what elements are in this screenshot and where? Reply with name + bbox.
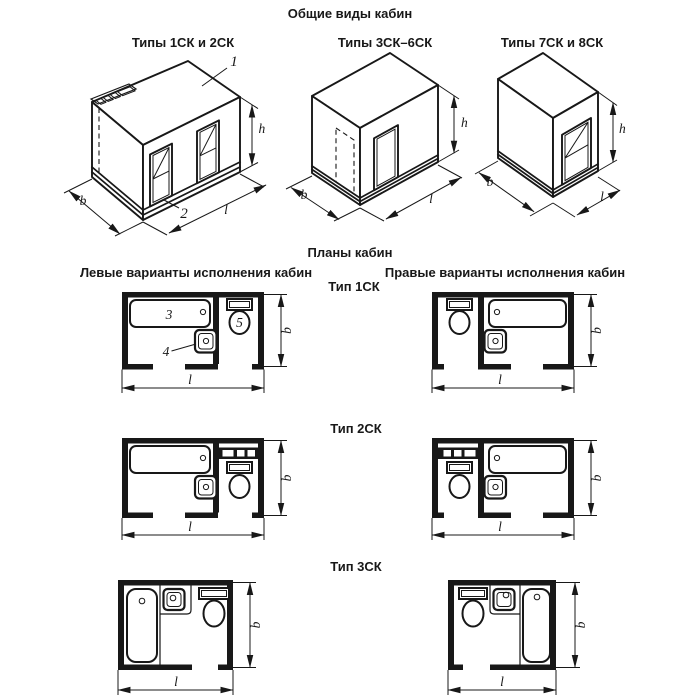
callout-bathtub: 3 [165, 307, 173, 322]
dimension-b: b [574, 441, 604, 516]
svg-text:l: l [174, 674, 178, 689]
wall-segment [432, 292, 438, 370]
type-3sk-title: Тип 3СК [330, 559, 382, 574]
wall-segment [478, 513, 511, 519]
type-2sk-title: Тип 2СК [330, 421, 382, 436]
dimension-l: l [432, 518, 574, 540]
wall-segment [122, 513, 153, 519]
svg-text:b: b [589, 327, 604, 334]
door [197, 120, 219, 183]
wall-segment [122, 438, 128, 518]
wall-segment [543, 364, 574, 370]
wall-segment [432, 438, 574, 444]
dimension-l: l [448, 670, 556, 695]
svg-text:h: h [461, 115, 468, 130]
iso-view-types-3sk-6sk: h b l [286, 53, 468, 221]
toilet [459, 588, 487, 627]
plan-1sk-right: b l [432, 292, 604, 393]
wall-segment [118, 580, 124, 670]
svg-text:b: b [279, 327, 294, 334]
toilet [199, 588, 229, 627]
bathtub [130, 446, 210, 473]
wall-segment [448, 665, 463, 671]
svg-text:l: l [429, 191, 433, 206]
washbasin [195, 476, 217, 499]
svg-text:l: l [498, 372, 502, 387]
wall-segment [118, 580, 233, 586]
wall-segment [258, 438, 264, 518]
dimension-h: h [598, 92, 626, 171]
callout-toilet: 5 [236, 315, 243, 330]
svg-text:l: l [188, 519, 192, 534]
dimension-b: b [556, 583, 588, 668]
left-variants-title: Левые варианты исполнения кабин [80, 265, 312, 280]
wall-segment [122, 292, 128, 370]
iso-view-types-1sk-2sk: 1 2 h b l [64, 54, 266, 236]
wall-segment [478, 364, 511, 370]
dimension-b: b [574, 295, 604, 367]
wall-segment [218, 665, 233, 671]
toilet [447, 299, 472, 334]
wall-segment [568, 438, 574, 518]
svg-text:h: h [619, 121, 626, 136]
wall-segment [448, 580, 556, 586]
main-title: Общие виды кабин [288, 6, 413, 21]
partition-wall [478, 443, 484, 513]
vent-block [219, 448, 258, 460]
wall-segment [122, 438, 264, 444]
svg-text:b: b [487, 174, 494, 189]
svg-text:l: l [188, 372, 192, 387]
wall-segment [118, 665, 192, 671]
plan-1sk-left: 3 4 5 b l [122, 292, 294, 393]
svg-text:b: b [301, 187, 308, 202]
type-1sk-title: Тип 1СК [328, 279, 380, 294]
washbasin [164, 589, 185, 610]
svg-text:l: l [224, 202, 228, 217]
view1-title: Типы 1СК и 2СК [132, 35, 234, 50]
svg-text:b: b [248, 621, 263, 628]
dimension-b: b [264, 295, 294, 367]
wall-segment [432, 438, 438, 518]
view2-title: Типы 3СК–6СК [338, 35, 432, 50]
dimension-h: h [438, 85, 468, 162]
wall-segment [448, 580, 454, 670]
dimension-b: b [233, 583, 263, 668]
wall-segment [252, 364, 264, 370]
svg-text:2: 2 [180, 206, 188, 222]
svg-text:b: b [279, 474, 294, 481]
svg-text:b: b [80, 193, 87, 208]
wall-segment [432, 364, 444, 370]
bathtub [489, 300, 566, 327]
vent-block [438, 448, 478, 460]
wall-segment [122, 364, 153, 370]
svg-text:1: 1 [230, 54, 238, 70]
plans-title: Планы кабин [307, 245, 392, 260]
wall-segment [432, 513, 444, 519]
washbasin [485, 330, 507, 353]
svg-text:l: l [500, 674, 504, 689]
iso-view-types-7sk-8sk: h b l [475, 53, 626, 217]
dimension-b: b [264, 441, 294, 516]
plan-2sk-right: b l [432, 438, 604, 540]
gost-cabin-diagram: Общие виды кабин Типы 1СК и 2СК Типы 3СК… [0, 0, 700, 700]
svg-text:l: l [498, 519, 502, 534]
bathtub [489, 446, 566, 473]
wall-segment [122, 292, 264, 298]
wall-segment [258, 292, 264, 370]
dimension-l: l [122, 518, 264, 540]
dimension-l: l [122, 370, 264, 394]
wall-segment [252, 513, 264, 519]
partition-wall [478, 297, 484, 364]
wall-segment [543, 513, 574, 519]
wall-segment [490, 665, 556, 671]
dimension-h: h [240, 97, 266, 172]
svg-text:l: l [600, 189, 604, 204]
callout-washbasin: 4 [163, 344, 196, 359]
wall-segment [568, 292, 574, 370]
wall-segment [432, 292, 574, 298]
plan-2sk-left: b l [122, 438, 294, 540]
washbasin [195, 330, 217, 353]
toilet [227, 462, 252, 498]
wall-segment [185, 364, 218, 370]
svg-text:4: 4 [163, 344, 170, 359]
washbasin [494, 589, 515, 610]
plan-3sk-right: b l [448, 580, 588, 695]
bathtub [127, 589, 157, 662]
dimension-l: l [432, 370, 574, 394]
svg-text:b: b [573, 621, 588, 628]
view3-title: Типы 7СК и 8СК [501, 35, 603, 50]
dimension-l: l [118, 670, 233, 695]
door [150, 144, 172, 207]
wall-segment [185, 513, 218, 519]
diagram-canvas: Общие виды кабин Типы 1СК и 2СК Типы 3СК… [0, 0, 700, 700]
right-variants-title: Правые варианты исполнения кабин [385, 265, 625, 280]
svg-text:h: h [259, 121, 266, 136]
washbasin [485, 476, 507, 499]
toilet [447, 462, 472, 498]
svg-text:b: b [589, 474, 604, 481]
plan-3sk-left: b l [118, 580, 263, 695]
